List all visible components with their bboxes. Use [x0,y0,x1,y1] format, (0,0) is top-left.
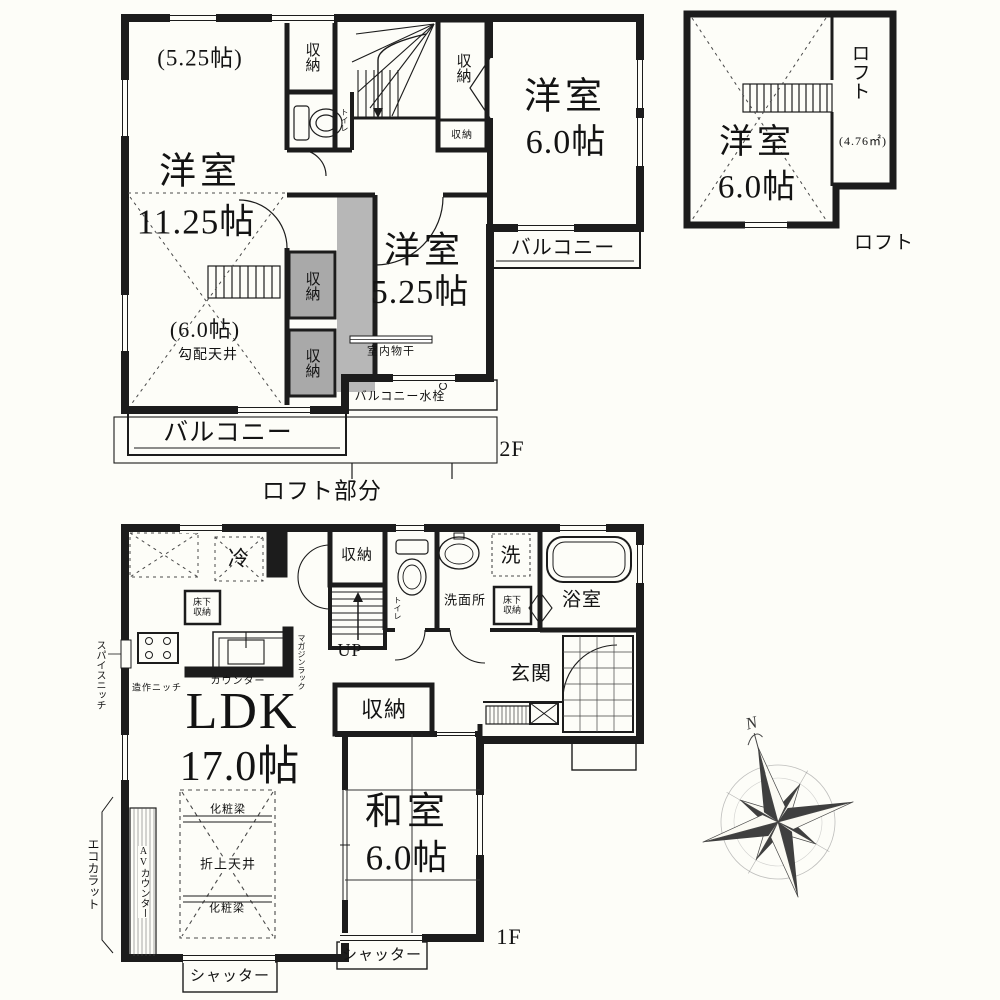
room-2f-south-name: 洋室 [384,232,464,268]
ldk-size: 17.0帖 [180,746,301,788]
magazine-rack-label: マガジンラック [297,634,305,690]
floorplan-linework: N [0,0,1000,1000]
floor2-label: 2F [499,438,524,460]
compass-north-label: N [743,712,761,734]
sloped-ceiling-note: 勾配天井 [178,349,238,363]
underfloor-storage-wash-label: 床下収納 [501,595,523,615]
beam-upper-label: 化粧梁 [208,805,248,816]
fridge-label: 冷 [228,549,250,570]
toilet-1f-icon [396,540,428,595]
spice-niche-label: スパイスニッチ [94,640,104,710]
shutter-ldk-label: シャッター [190,970,270,985]
closet-2f-3-label: 収納 [451,131,473,141]
toilet-1f-label: トイレ [393,596,401,620]
indoor-drying-label: 室内物干 [367,347,415,358]
room-2f-west-lower-sub: (6.0帖) [170,319,240,341]
compass-rose: N [674,694,874,918]
underfloor-storage-kitchen-label: 床下収納 [191,597,213,617]
room-2f-east-name: 洋室 [524,79,606,116]
balcony-faucet-label: バルコニー水栓 [355,390,446,402]
loft-section-caption: ロフト部分 [262,480,382,503]
loft-room-size: 6.0帖 [718,172,796,205]
niche-label: 造作ニッチ [132,684,182,693]
room-2f-south-size: 5.25帖 [371,276,470,310]
loft-caption: ロフト [854,234,914,253]
washbasin-icon [439,533,479,569]
closet-2f-5-label: 収納 [304,348,319,378]
closet-2f-2-label: 収納 [455,53,470,83]
bathtub-icon [547,537,631,582]
balcony-east-label: バルコニー [511,238,616,258]
loft-area-label: (4.76㎡) [839,135,887,147]
room-2f-west-upper-sub: (5.25帖) [157,47,243,70]
japanese-room-size: 6.0帖 [366,841,449,876]
ecocarat-label: エコカラット [87,838,99,910]
floorplan-page: N (5.25帖) 収納 トイレ 収納 収納 洋室 6.0帖 バルコニー 洋室 … [0,0,1000,1000]
av-counter-label: AVカウンター [138,846,148,918]
room-2f-east-size: 6.0帖 [526,126,607,160]
toilet-2f-label: トイレ [340,108,348,132]
coffered-ceiling-label: 折上天井 [198,858,258,871]
bathroom-label: 浴室 [562,591,602,610]
loft-room-name: 洋室 [719,126,795,160]
stairs-up-label: UP [337,641,362,659]
beam-lower-label: 化粧梁 [207,904,247,915]
room-2f-west-name: 洋室 [159,154,241,191]
loft-strip-label: ロフト [850,44,869,101]
shutter-washitsu-label: シャッター [342,949,422,964]
balcony-south-label: バルコニー [163,421,293,446]
japanese-room-name: 和室 [365,793,449,831]
closet-2f-1-label: 収納 [304,42,319,72]
closet-1f-upper-label: 収納 [341,549,373,564]
entrance-label: 玄関 [510,664,552,684]
closet-2f-4-label: 収納 [304,271,319,301]
ldk-name: LDK [186,686,299,738]
floor1-label: 1F [496,926,521,948]
washroom-label: 洗面所 [444,594,486,607]
closet-1f-middle-label: 収納 [361,699,407,721]
laundry-label: 洗 [501,546,522,566]
room-2f-west-size: 11.25帖 [137,205,255,240]
